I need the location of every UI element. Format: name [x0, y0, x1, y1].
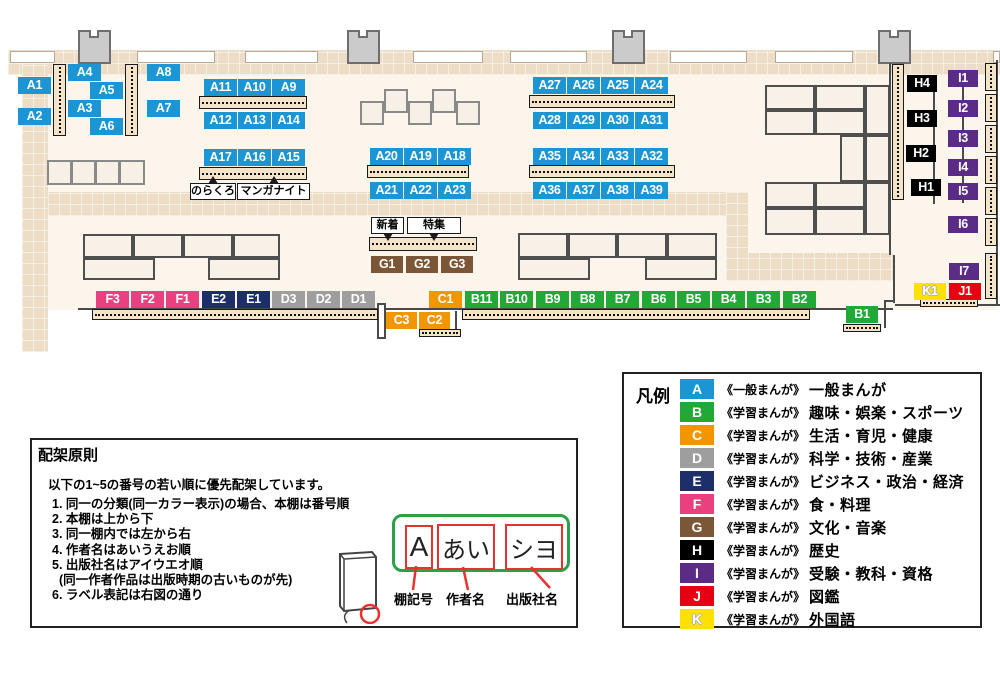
- legend-item-b: B《学習まんが》趣味・娯楽・スポーツ: [680, 402, 964, 422]
- legend-series: 《学習まんが》: [721, 427, 809, 444]
- legend-item-a: A《一般まんが》一般まんが: [680, 379, 887, 399]
- legend-category: 受験・教科・資格: [809, 563, 933, 584]
- shelf-label-a11: A11: [204, 79, 237, 96]
- wall-window: [670, 51, 747, 63]
- bookshelf: [985, 187, 997, 215]
- bookshelf: [985, 125, 997, 153]
- shelf-label-a21: A21: [370, 182, 403, 199]
- rules-item: 1. 同一の分類(同一カラー表示)の場合、本棚は番号順: [52, 497, 349, 512]
- legend-item-i: I《学習まんが》受験・教科・資格: [680, 563, 933, 583]
- shelf-label-a6: A6: [90, 118, 123, 135]
- display-square: [95, 160, 120, 185]
- legend-swatch-d: D: [680, 448, 714, 468]
- shelf-label-a36: A36: [533, 182, 566, 199]
- label-pointer-lines: [398, 564, 568, 592]
- legend-item-c: C《学習まんが》生活・育児・健康: [680, 425, 933, 445]
- shelf-label-b5: B5: [677, 291, 710, 308]
- display-square: [360, 101, 384, 125]
- shelf-label-g1: G1: [371, 256, 403, 273]
- table-block: [645, 258, 717, 280]
- pillar: [347, 30, 380, 64]
- wall-window: [775, 51, 853, 63]
- bookshelf: [462, 309, 810, 320]
- shelf-label-g3: G3: [441, 256, 473, 273]
- shelf-label-a22: A22: [404, 182, 437, 199]
- shelf-label-a25: A25: [601, 77, 634, 94]
- table-block: [865, 135, 890, 182]
- shelf-label-a13: A13: [238, 112, 271, 129]
- shelf-label-b3: B3: [747, 291, 780, 308]
- wall-box: [377, 303, 386, 339]
- shelf-label-a34: A34: [567, 148, 600, 165]
- table-block: [183, 234, 233, 258]
- table-block: [765, 110, 815, 135]
- shelf-label-f3: F3: [96, 291, 129, 308]
- shelf-label-h4: H4: [907, 75, 937, 92]
- legend-category: 趣味・娯楽・スポーツ: [809, 402, 964, 423]
- table-block: [83, 258, 155, 280]
- bookshelf: [985, 253, 997, 299]
- legend-swatch-c: C: [680, 425, 714, 445]
- bookshelf: [367, 165, 469, 178]
- shelf-label-a33: A33: [601, 148, 634, 165]
- table-block: [815, 208, 865, 235]
- shelf-label-a20: A20: [370, 148, 403, 165]
- rules-item: 3. 同一棚内では左から右: [52, 527, 349, 542]
- shelf-label-d2: D2: [307, 291, 340, 308]
- legend-item-e: E《学習まんが》ビジネス・政治・経済: [680, 471, 964, 491]
- rules-item: 6. ラベル表記は右図の通り: [52, 588, 349, 603]
- legend-category: 図鑑: [809, 586, 840, 607]
- rules-title: 配架原則: [38, 444, 98, 465]
- shelf-label-a3: A3: [68, 100, 101, 117]
- bookshelf: [529, 165, 675, 178]
- legend-item-h: H《学習まんが》歴史: [680, 540, 840, 560]
- bookshelf: [843, 324, 881, 332]
- shelf-label-f2: F2: [131, 291, 164, 308]
- legend-swatch-k: K: [680, 609, 714, 629]
- legend-series: 《学習まんが》: [721, 496, 809, 513]
- pillar-notch: [358, 30, 368, 38]
- legend-series: 《一般まんが》: [721, 381, 809, 398]
- bookshelf: [985, 63, 997, 91]
- shelf-label-e2: E2: [202, 291, 235, 308]
- bookshelf: [92, 309, 378, 320]
- shelf-label-a32: A32: [635, 148, 668, 165]
- legend-swatch-f: F: [680, 494, 714, 514]
- shelf-label-a35: A35: [533, 148, 566, 165]
- shelf-name-tag: 新着: [371, 217, 404, 234]
- shelf-label-b7: B7: [606, 291, 639, 308]
- shelf-label-d3: D3: [272, 291, 305, 308]
- shelf-label-i6: I6: [948, 216, 978, 233]
- pillar-notch: [89, 30, 99, 38]
- display-square: [119, 160, 145, 185]
- legend-category: 歴史: [809, 540, 840, 561]
- wall-window: [245, 51, 318, 63]
- rules-item: 5. 出版社名はアイウエオ順: [52, 558, 349, 573]
- pillar: [612, 30, 645, 64]
- shelf-label-f1: F1: [166, 291, 199, 308]
- legend-swatch-i: I: [680, 563, 714, 583]
- table-block: [518, 258, 590, 280]
- shelf-label-a14: A14: [272, 112, 305, 129]
- shelf-label-a15: A15: [272, 149, 305, 166]
- legend-item-d: D《学習まんが》科学・技術・産業: [680, 448, 933, 468]
- shelf-label-e1: E1: [237, 291, 270, 308]
- legend-category: 科学・技術・産業: [809, 448, 933, 469]
- table-block: [865, 182, 890, 235]
- shelf-label-h3: H3: [907, 110, 937, 127]
- legend-item-g: G《学習まんが》文化・音楽: [680, 517, 887, 537]
- shelf-label-h2: H2: [906, 145, 936, 162]
- legend-swatch-h: H: [680, 540, 714, 560]
- label-part-caption: 作者名: [446, 589, 485, 608]
- wall-window: [10, 51, 55, 63]
- bookshelf: [985, 94, 997, 122]
- rules-list: 1. 同一の分類(同一カラー表示)の場合、本棚は番号順2. 本棚は上から下3. …: [52, 497, 349, 603]
- wall-line: [884, 300, 886, 328]
- walkway: [726, 192, 748, 281]
- table-block: [208, 258, 280, 280]
- shelf-label-a1: A1: [18, 77, 51, 94]
- book-icon: [326, 548, 388, 624]
- shelf-label-a2: A2: [18, 108, 51, 125]
- table-block: [815, 85, 865, 110]
- table-block: [840, 135, 865, 182]
- legend-series: 《学習まんが》: [721, 519, 809, 536]
- legend-category: 一般まんが: [809, 379, 887, 400]
- label-part-caption: 出版社名: [506, 589, 558, 608]
- legend-title: 凡例: [636, 382, 670, 407]
- display-square: [384, 89, 408, 113]
- legend-item-f: F《学習まんが》食・料理: [680, 494, 871, 514]
- shelf-label-g2: G2: [406, 256, 438, 273]
- table-block: [518, 233, 568, 258]
- table-block: [667, 233, 717, 258]
- label-example-box: A: [405, 525, 433, 569]
- bookshelf: [419, 329, 461, 337]
- shelf-label-a27: A27: [533, 77, 566, 94]
- shelf-label-a8: A8: [147, 64, 180, 81]
- shelf-label-i7: I7: [949, 263, 979, 280]
- shelf-label-b1: B1: [846, 306, 878, 323]
- shelf-label-b6: B6: [642, 291, 675, 308]
- floor-map: A1A2A4A5A3A6A8A7A11A10A9A12A13A14A17A16A…: [0, 0, 1000, 370]
- shelf-label-h1: H1: [911, 179, 941, 196]
- table-block: [233, 234, 280, 258]
- table-block: [865, 85, 890, 135]
- shelf-label-j1: J1: [949, 283, 981, 300]
- table-block: [815, 182, 865, 208]
- shelf-label-b10: B10: [500, 291, 533, 308]
- legend-swatch-j: J: [680, 586, 714, 606]
- table-block: [617, 233, 667, 258]
- shelf-label-c2: C2: [419, 312, 450, 329]
- bookshelf: [892, 64, 904, 200]
- rules-item: 2. 本棚は上から下: [52, 512, 349, 527]
- shelf-label-d1: D1: [342, 291, 375, 308]
- pillar-notch: [623, 30, 633, 38]
- shelf-label-i3: I3: [948, 130, 978, 147]
- shelf-label-c3: C3: [386, 312, 417, 329]
- table-block: [83, 234, 133, 258]
- shelf-label-k1: K1: [914, 283, 946, 300]
- pillar: [878, 30, 911, 64]
- legend-panel: 凡例 A《一般まんが》一般まんがB《学習まんが》趣味・娯楽・スポーツC《学習まん…: [622, 372, 982, 628]
- legend-item-j: J《学習まんが》図鑑: [680, 586, 840, 606]
- shelf-label-b4: B4: [712, 291, 745, 308]
- shelf-label-i5: I5: [948, 183, 978, 200]
- legend-series: 《学習まんが》: [721, 542, 809, 559]
- shelf-name-tag: 特集: [407, 217, 461, 234]
- legend-category: ビジネス・政治・経済: [809, 471, 964, 492]
- legend-category: 文化・音楽: [809, 517, 887, 538]
- shelf-label-i1: I1: [948, 70, 978, 87]
- shelf-label-a7: A7: [147, 100, 180, 117]
- wall-window: [510, 51, 587, 63]
- legend-swatch-b: B: [680, 402, 714, 422]
- display-square: [432, 89, 456, 113]
- wall-line: [893, 255, 895, 303]
- wall-window: [137, 51, 215, 63]
- shelf-label-b11: B11: [465, 291, 498, 308]
- legend-swatch-g: G: [680, 517, 714, 537]
- shelf-label-a19: A19: [404, 148, 437, 165]
- rules-item: 4. 作者名はあいうえお順: [52, 543, 349, 558]
- legend-series: 《学習まんが》: [721, 404, 809, 421]
- shelf-label-i2: I2: [948, 100, 978, 117]
- bookshelf: [199, 96, 307, 109]
- rules-intro: 以下の1~5の番号の若い順に優先配架しています。: [48, 474, 330, 493]
- table-block: [765, 208, 815, 235]
- shelf-label-a23: A23: [438, 182, 471, 199]
- table-block: [765, 182, 815, 208]
- legend-series: 《学習まんが》: [721, 611, 809, 628]
- legend-item-k: K《学習まんが》外国語: [680, 609, 856, 629]
- shelf-label-a31: A31: [635, 112, 668, 129]
- legend-swatch-a: A: [680, 379, 714, 399]
- floor-map-page: A1A2A4A5A3A6A8A7A11A10A9A12A13A14A17A16A…: [0, 0, 1000, 700]
- pillar-notch: [889, 30, 899, 38]
- shelf-label-c1: C1: [429, 291, 462, 308]
- display-square: [47, 160, 72, 185]
- table-block: [815, 110, 865, 135]
- shelf-label-a12: A12: [204, 112, 237, 129]
- legend-series: 《学習まんが》: [721, 588, 809, 605]
- shelf-label-a37: A37: [567, 182, 600, 199]
- bookshelf: [53, 64, 66, 136]
- label-part-caption: 棚記号: [394, 589, 433, 608]
- legend-series: 《学習まんが》: [721, 565, 809, 582]
- shelf-label-a18: A18: [438, 148, 471, 165]
- display-square: [71, 160, 96, 185]
- bookshelf: [125, 64, 138, 136]
- shelf-label-a16: A16: [238, 149, 271, 166]
- table-block: [765, 85, 815, 110]
- legend-category: 生活・育児・健康: [809, 425, 933, 446]
- table-block: [133, 234, 183, 258]
- pillar: [78, 30, 111, 64]
- walkway: [748, 253, 893, 281]
- shelf-label-a4: A4: [68, 64, 101, 81]
- display-square: [408, 101, 432, 125]
- shelf-label-a26: A26: [567, 77, 600, 94]
- shelf-label-a38: A38: [601, 182, 634, 199]
- shelf-label-a17: A17: [204, 149, 237, 166]
- shelf-label-a9: A9: [272, 79, 305, 96]
- legend-category: 外国語: [809, 609, 856, 630]
- shelf-label-b8: B8: [571, 291, 604, 308]
- rules-item: (同一作者作品は出版時期の古いものが先): [52, 573, 349, 588]
- legend-swatch-e: E: [680, 471, 714, 491]
- shelf-name-tag: マンガナイト: [237, 183, 310, 200]
- shelf-label-a30: A30: [601, 112, 634, 129]
- shelf-label-a39: A39: [635, 182, 668, 199]
- bookshelf: [985, 156, 997, 184]
- shelf-label-a24: A24: [635, 77, 668, 94]
- bookshelf: [529, 95, 675, 108]
- shelf-label-a29: A29: [567, 112, 600, 129]
- shelf-label-b2: B2: [783, 291, 816, 308]
- shelf-name-tag: のらくろ: [190, 183, 236, 200]
- wall-window: [413, 51, 483, 63]
- shelf-label-b9: B9: [536, 291, 569, 308]
- shelf-label-a10: A10: [238, 79, 271, 96]
- bookshelf: [920, 299, 978, 307]
- legend-category: 食・料理: [809, 494, 871, 515]
- legend-series: 《学習まんが》: [721, 473, 809, 490]
- shelf-label-a28: A28: [533, 112, 566, 129]
- bookshelf: [985, 218, 997, 246]
- shelf-label-i4: I4: [948, 159, 978, 176]
- display-square: [456, 101, 480, 125]
- legend-series: 《学習まんが》: [721, 450, 809, 467]
- shelf-label-a5: A5: [90, 82, 123, 99]
- table-block: [568, 233, 617, 258]
